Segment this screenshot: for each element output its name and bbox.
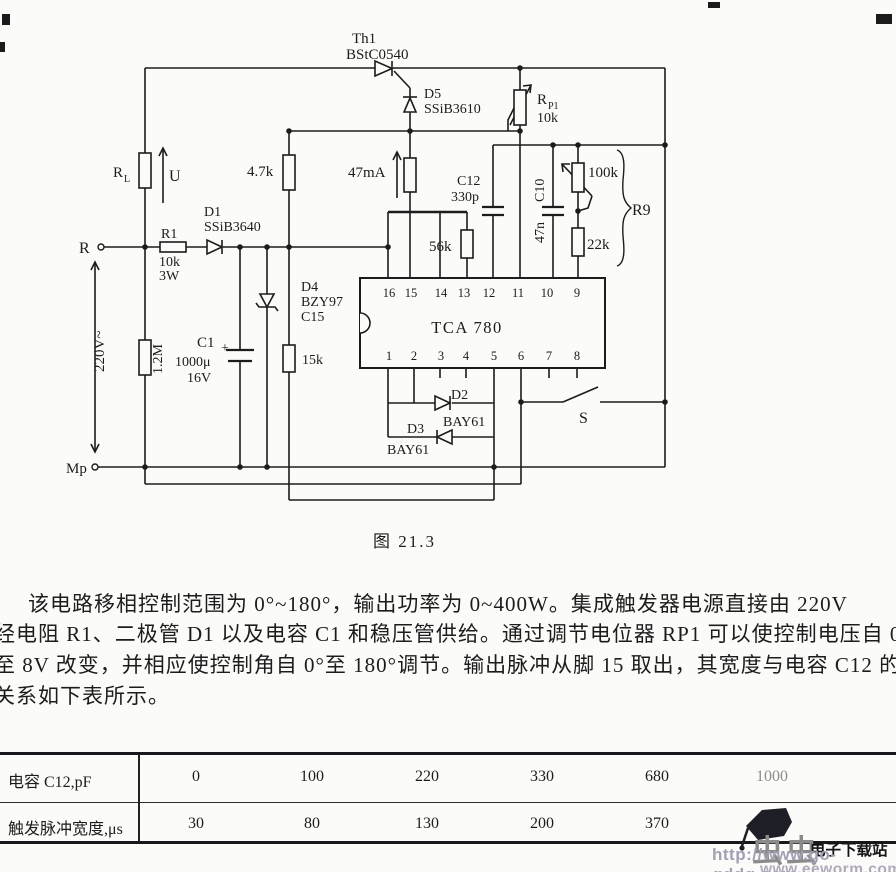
resistor-rl: [139, 153, 151, 188]
label-15k: 15k: [302, 353, 323, 368]
label-47ma: 47mA: [348, 165, 386, 181]
label-ic: TCA 780: [431, 318, 502, 337]
scan-artifact: [2, 14, 10, 25]
watermark-url: www.eeworm.com: [760, 861, 896, 872]
label-r1: R1: [161, 227, 177, 242]
pin-5: 5: [491, 349, 497, 363]
label-c1: C1: [197, 335, 215, 351]
paragraph-line: 关系如下表所示。: [0, 680, 170, 710]
table-row-label: 触发脉冲宽度,μs: [8, 815, 123, 839]
table-column-divider: [138, 755, 140, 841]
label-d1: D1: [204, 205, 221, 220]
diode-d3: [437, 430, 452, 444]
label-220v: 220V~: [92, 331, 108, 372]
pin-3: 3: [438, 349, 444, 363]
label-r1-value: 10k: [159, 255, 180, 270]
diode-d1: [207, 240, 222, 254]
wires: [91, 68, 665, 500]
label-c10-value: 47n: [533, 222, 548, 243]
pin-16: 16: [383, 286, 396, 300]
label-56k: 56k: [429, 239, 452, 255]
label-terminal-r: R: [79, 240, 90, 257]
resistor-22k: [572, 228, 584, 256]
paragraph-line: 该电路移相控制范围为 0°~180°，输出功率为 0~400W。集成触发器电源直…: [28, 588, 848, 618]
scan-artifact: [876, 14, 892, 24]
potentiometer-100k: [572, 163, 584, 192]
label-100k: 100k: [588, 165, 619, 181]
pin-8: 8: [574, 349, 580, 363]
scan-artifact: [708, 2, 720, 8]
label-rl-sub: L: [124, 174, 130, 185]
label-d2-part: BAY61: [443, 415, 485, 430]
diode-d2: [435, 396, 450, 410]
label-c1-voltage: 16V: [187, 371, 211, 386]
table-cell: 0: [151, 768, 241, 786]
label-terminal-mp: Mp: [66, 461, 87, 477]
resistor-4k7: [283, 155, 295, 190]
label-rp1-value: 10k: [537, 111, 558, 126]
terminal-mp-node: [92, 464, 98, 470]
semiconductors: [207, 61, 452, 444]
zener-d4: [260, 294, 274, 307]
table-cell: 680: [612, 768, 702, 786]
table-cell: 30: [151, 815, 241, 833]
label-d2: D2: [451, 388, 468, 403]
pin-10: 10: [541, 286, 554, 300]
pin-11: 11: [512, 286, 524, 300]
pin-14: 14: [435, 286, 448, 300]
label-c12: C12: [457, 174, 480, 189]
label-d1-part: SSiB3640: [204, 220, 261, 235]
label-c12-value: 330p: [451, 190, 479, 205]
resistor-1m2: [139, 340, 151, 375]
label-th1-part: BStC0540: [346, 47, 409, 63]
terminal-r-node: [98, 244, 104, 250]
table-row-label: 电容 C12,pF: [8, 768, 92, 792]
label-d4-type: C15: [301, 310, 324, 325]
table-cell: 80: [267, 815, 357, 833]
pin-13: 13: [458, 286, 471, 300]
table-cell: 200: [497, 815, 587, 833]
thyristor-th1: [375, 61, 392, 76]
resistor-47ma: [404, 158, 416, 192]
pin-15: 15: [405, 286, 418, 300]
label-d4: D4: [301, 280, 318, 295]
table-cell: 330: [497, 768, 587, 786]
label-r1-power: 3W: [159, 269, 180, 284]
scan-artifact: [0, 42, 5, 52]
resistor-56k: [461, 230, 473, 258]
label-d5: D5: [424, 87, 441, 102]
resistor-15k: [283, 345, 295, 372]
paragraph-line: 至 8V 改变，并相应使控制角自 0°至 180°调节。输出脉冲从脚 15 取出…: [0, 649, 896, 679]
label-s: S: [579, 410, 588, 427]
label-d4-part: BZY97: [301, 295, 343, 310]
capacitors: [226, 207, 564, 361]
label-c1-value: 1000μ: [175, 355, 211, 370]
label-th1: Th1: [352, 31, 376, 47]
pin-7: 7: [546, 349, 552, 363]
potentiometer-rp1: [514, 90, 526, 125]
label-4k7: 4.7k: [247, 164, 274, 180]
label-rl: R: [113, 165, 123, 181]
pin-9: 9: [574, 286, 580, 300]
table-cell: 220: [382, 768, 472, 786]
label-r9: R9: [632, 202, 651, 219]
label-d3-part: BAY61: [387, 443, 429, 458]
resistor-r1: [160, 242, 186, 252]
pin-6: 6: [518, 349, 524, 363]
junction-dots: [142, 65, 668, 470]
table-cell: 1000: [727, 768, 817, 786]
figure-caption: 图 21.3: [373, 527, 436, 552]
table-cell: 370: [612, 815, 702, 833]
label-d5-part: SSiB3610: [424, 102, 481, 117]
diode-d5: [404, 98, 416, 112]
label-rp1: R: [537, 92, 547, 108]
label-c1-plus: +: [221, 341, 229, 356]
pin-2: 2: [411, 349, 417, 363]
pin-12: 12: [483, 286, 496, 300]
circuit-schematic: Th1 BStC0540 D5 SSiB3610 R P1 10k R L U …: [0, 0, 896, 565]
label-22k: 22k: [587, 237, 610, 253]
scanned-book-page: Th1 BStC0540 D5 SSiB3610 R P1 10k R L U …: [0, 0, 896, 872]
table-cell: 100: [267, 768, 357, 786]
label-d3: D3: [407, 422, 424, 437]
r9-brace: [617, 150, 631, 266]
ic-notch: [360, 313, 370, 333]
paragraph-line: 经电阻 R1、二极管 D1 以及电容 C1 和稳压管供给。通过调节电位器 RP1…: [0, 618, 896, 648]
pin-4: 4: [463, 349, 470, 363]
label-u: U: [169, 168, 181, 185]
pin-1: 1: [386, 349, 392, 363]
label-1m2: 1.2M: [151, 344, 166, 375]
table-cell: 130: [382, 815, 472, 833]
label-c10: C10: [533, 179, 548, 202]
